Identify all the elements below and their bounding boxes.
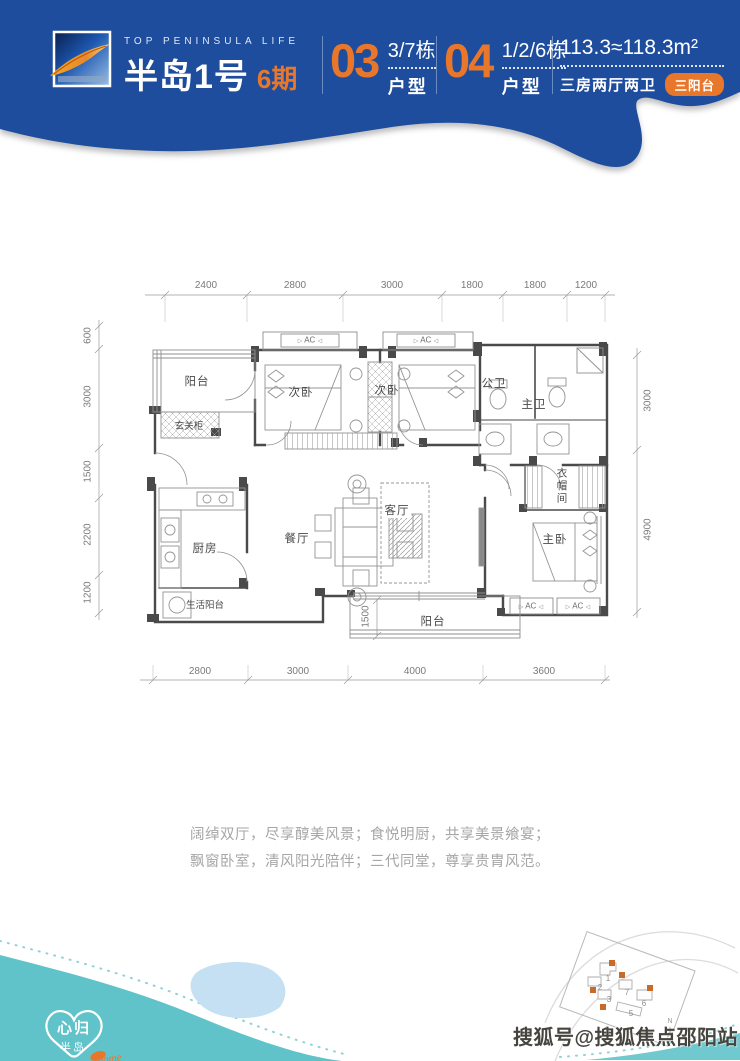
- building-number-7: 7: [625, 988, 630, 997]
- dim-left-2: 3000: [83, 375, 94, 419]
- dim-right-1: 3000: [643, 379, 654, 423]
- ac-arrow-icon: ▷: [298, 339, 303, 345]
- watermark-text: 搜狐号@搜狐焦点邵阳站: [513, 1021, 738, 1050]
- dim-left-5: 1200: [83, 571, 94, 615]
- building-number-5: 5: [629, 1009, 634, 1018]
- header-divider: [322, 36, 323, 94]
- header-divider: [436, 36, 437, 94]
- dim-left-4: 2200: [83, 513, 94, 557]
- ac-arrow-icon: ◁: [434, 339, 439, 345]
- area-block: 113.3≈118.3m² 三房两厅两卫 三阳台: [560, 36, 724, 96]
- brand-chinese: 半岛1号: [124, 58, 249, 96]
- ac-unit-label: ▷ AC ◁: [298, 336, 322, 345]
- dim-top-3: 3000: [370, 280, 414, 291]
- room-label-utility-balcony: 生活阳台: [186, 597, 224, 611]
- header-divider: [552, 36, 553, 94]
- ac-unit-label: ▷ AC ◁: [519, 602, 543, 611]
- header: TOP PENINSULA LIFE 半岛1号6期 03 3/7栋 户型 04 …: [0, 0, 740, 130]
- unit-04-label: 户型: [502, 73, 566, 99]
- room-label-entry-cabinet: 玄关柜: [175, 418, 204, 432]
- balcony-badge: 三阳台: [665, 73, 724, 96]
- ac-arrow-icon: ◁: [539, 605, 544, 611]
- ac-arrow-icon: ◁: [318, 339, 323, 345]
- dim-bottom-2: 3000: [276, 666, 320, 677]
- room-label-cloakroom: 衣帽间: [555, 467, 570, 505]
- brand-block: TOP PENINSULA LIFE 半岛1号6期: [124, 36, 299, 98]
- ac-text: AC: [525, 602, 536, 611]
- dim-left-1: 600: [83, 314, 94, 358]
- building-number-3: 3: [607, 995, 612, 1004]
- brand-logo-icon: [48, 30, 116, 94]
- ac-arrow-icon: ▷: [566, 605, 571, 611]
- unit-03-label: 户型: [388, 73, 436, 99]
- unit-04-buildings: 1/2/6栋: [502, 34, 566, 69]
- ac-arrow-icon: ▷: [519, 605, 524, 611]
- dim-top-5: 1800: [513, 280, 557, 291]
- heart-logo-line2: 半岛: [60, 1040, 86, 1054]
- dim-bottom-4: 3600: [522, 666, 566, 677]
- area-value: 113.3≈118.3m²: [560, 36, 724, 67]
- building-number-6: 6: [642, 999, 647, 1008]
- room-label-balcony-bottom: 阳台: [421, 613, 446, 629]
- unit-03-number: 03: [330, 34, 378, 88]
- room-label-master-bedroom: 主卧: [543, 531, 568, 547]
- room-label-kitchen: 厨房: [193, 540, 218, 556]
- pond-shape: [191, 962, 286, 1018]
- floorplan: 2400 2800 3000 1800 1800 1200 2800 3000 …: [85, 270, 655, 700]
- ac-arrow-icon: ▷: [414, 339, 419, 345]
- room-label-bedroom2a: 次卧: [289, 384, 314, 400]
- poster: TOP PENINSULA LIFE 半岛1号6期 03 3/7栋 户型 04 …: [0, 0, 740, 1061]
- room-label-dining: 餐厅: [285, 530, 310, 546]
- dim-balcony-1500: 1500: [361, 595, 372, 639]
- ac-unit-label: ▷ AC ◁: [414, 336, 438, 345]
- dim-top-6: 1200: [564, 280, 608, 291]
- brand-phase: 6期: [257, 64, 297, 94]
- ac-unit-label: ▷ AC ◁: [566, 602, 590, 611]
- building-number-1: 1: [606, 974, 611, 983]
- dim-bottom-3: 4000: [393, 666, 437, 677]
- tagline-line1: 阔绰双厅，尽享醇美风景；食悦明厨，共享美景飨宴；: [0, 822, 740, 849]
- dim-top-2: 2800: [273, 280, 317, 291]
- dim-left-3: 1500: [83, 450, 94, 494]
- ac-text: AC: [304, 336, 315, 345]
- dim-top-1: 2400: [184, 280, 228, 291]
- ac-arrow-icon: ◁: [586, 605, 591, 611]
- room-label-bath-master: 主卫: [522, 396, 547, 412]
- unit-04-block: 04 1/2/6栋 户型: [444, 34, 566, 99]
- room-label-living: 客厅: [383, 502, 412, 518]
- room-label-balcony-top: 阳台: [185, 373, 210, 389]
- unit-03-block: 03 3/7栋 户型: [330, 34, 436, 99]
- dim-top-4: 1800: [450, 280, 494, 291]
- dim-right-2: 4900: [643, 508, 654, 552]
- building-number-2: 2: [598, 983, 603, 992]
- ac-text: AC: [420, 336, 431, 345]
- dim-bottom-1: 2800: [178, 666, 222, 677]
- brand-english: TOP PENINSULA LIFE: [124, 36, 299, 47]
- heart-brand-logo: 心归 半岛 home: [42, 1006, 132, 1061]
- heart-logo-line1: 心归: [57, 1019, 91, 1037]
- unit-03-buildings: 3/7栋: [388, 34, 436, 69]
- room-label-bedroom2b: 次卧: [375, 382, 400, 398]
- layout-text: 三房两厅两卫: [560, 77, 656, 94]
- unit-04-number: 04: [444, 34, 492, 88]
- room-label-bath-public: 公卫: [482, 375, 507, 391]
- ac-text: AC: [572, 602, 583, 611]
